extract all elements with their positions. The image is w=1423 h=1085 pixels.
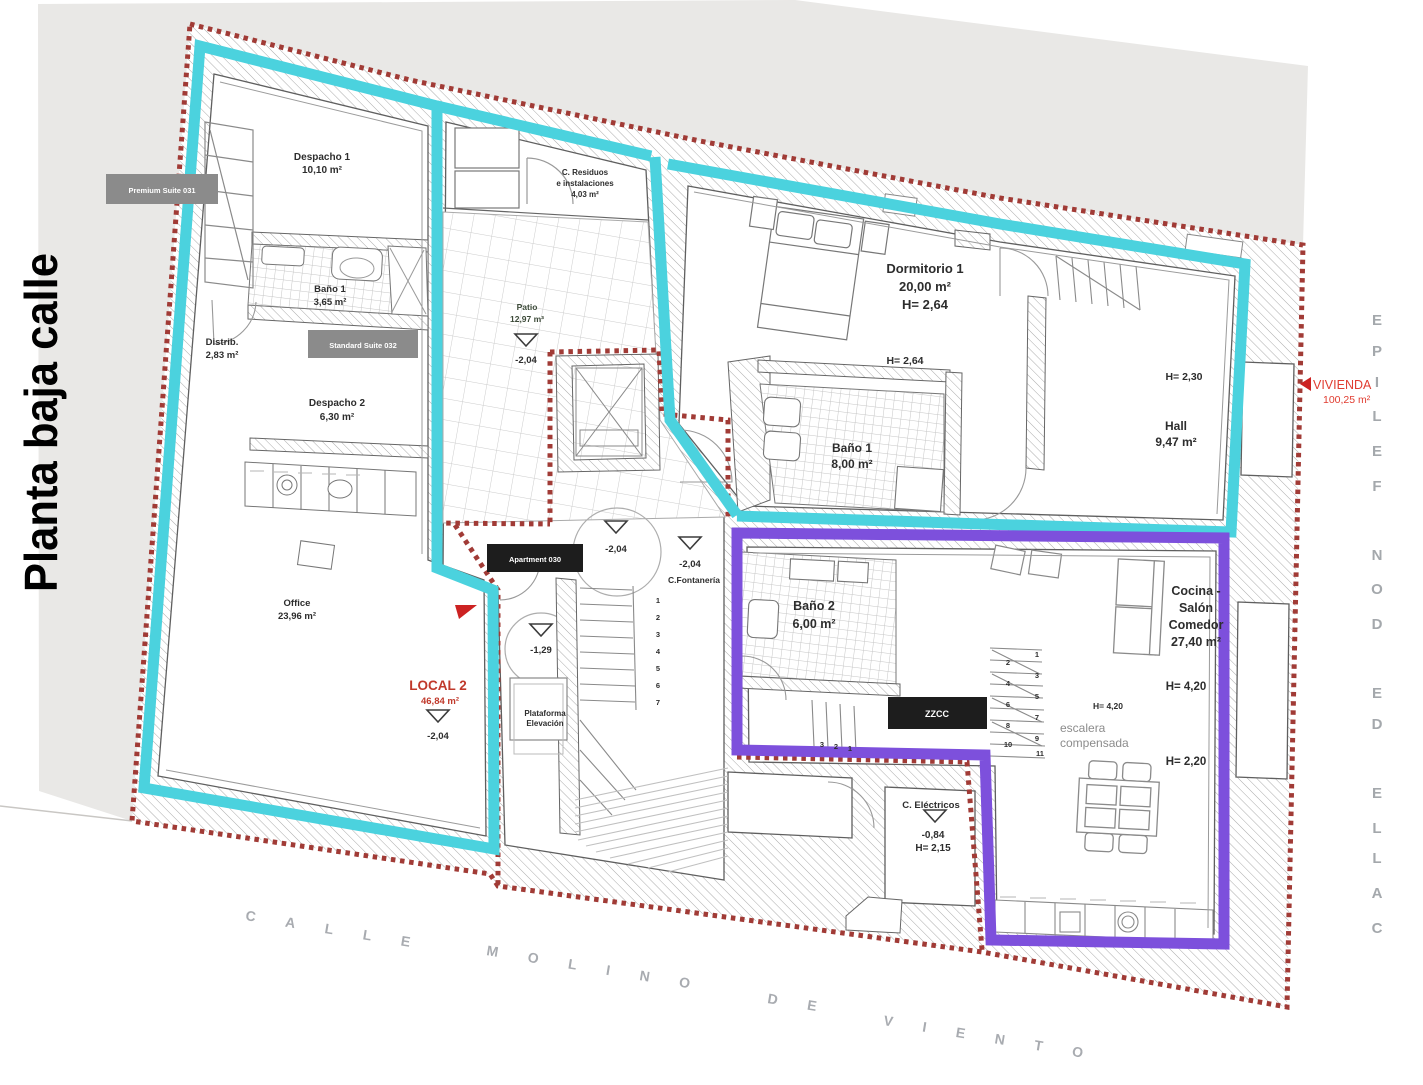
svg-text:H= 4,20: H= 4,20 xyxy=(1166,681,1207,693)
svg-text:ZZCC: ZZCC xyxy=(925,709,949,719)
svg-text:E: E xyxy=(1372,685,1382,702)
svg-text:3,65 m²: 3,65 m² xyxy=(314,297,347,308)
svg-text:escalera: escalera xyxy=(1060,721,1106,735)
svg-text:Despacho 1: Despacho 1 xyxy=(294,152,351,163)
svg-text:5: 5 xyxy=(656,664,660,673)
svg-text:Comedor: Comedor xyxy=(1169,618,1224,632)
svg-text:7: 7 xyxy=(656,698,660,707)
svg-text:D: D xyxy=(1372,616,1383,633)
svg-text:Hall: Hall xyxy=(1165,419,1187,433)
svg-text:4,03 m²: 4,03 m² xyxy=(571,190,599,199)
svg-text:-2,04: -2,04 xyxy=(515,355,537,366)
svg-text:E: E xyxy=(1372,312,1382,329)
svg-text:Elevación: Elevación xyxy=(526,719,563,728)
svg-text:H= 2,30: H= 2,30 xyxy=(1165,371,1202,383)
svg-text:L: L xyxy=(1372,820,1381,837)
svg-text:Premium Suite 031: Premium Suite 031 xyxy=(128,186,195,195)
svg-text:2,83 m²: 2,83 m² xyxy=(206,350,239,361)
svg-text:3: 3 xyxy=(656,630,660,639)
svg-text:100,25 m²: 100,25 m² xyxy=(1323,394,1371,406)
svg-text:Salón: Salón xyxy=(1179,601,1213,615)
svg-text:Distrib.: Distrib. xyxy=(206,337,239,348)
svg-text:6,00 m²: 6,00 m² xyxy=(792,617,835,631)
svg-text:1: 1 xyxy=(1035,650,1039,659)
svg-text:9: 9 xyxy=(1035,734,1039,743)
svg-text:-1,29: -1,29 xyxy=(530,645,552,656)
svg-text:H= 2,20: H= 2,20 xyxy=(1166,756,1207,768)
svg-text:12,97 m³: 12,97 m³ xyxy=(510,314,544,324)
svg-text:Dormitorio 1: Dormitorio 1 xyxy=(886,261,963,276)
svg-text:46,84 m²: 46,84 m² xyxy=(421,696,459,707)
svg-text:H= 4,20: H= 4,20 xyxy=(1093,701,1123,711)
svg-text:2: 2 xyxy=(656,613,660,622)
svg-text:1: 1 xyxy=(848,744,852,753)
svg-text:Apartment 030: Apartment 030 xyxy=(509,555,561,564)
svg-text:VIVIENDA: VIVIENDA xyxy=(1313,378,1372,392)
svg-text:C.Fontanería: C.Fontanería xyxy=(668,575,720,585)
svg-text:8: 8 xyxy=(1006,721,1010,730)
svg-text:Standard Suite 032: Standard Suite 032 xyxy=(329,341,397,350)
svg-text:N: N xyxy=(1372,547,1383,564)
svg-text:Cocina -: Cocina - xyxy=(1171,584,1220,598)
svg-text:10,10 m²: 10,10 m² xyxy=(302,165,343,176)
svg-text:L: L xyxy=(1372,850,1381,867)
svg-text:Office: Office xyxy=(284,598,311,609)
svg-text:6: 6 xyxy=(1006,700,1010,709)
svg-text:11: 11 xyxy=(1036,749,1044,758)
svg-text:e instalaciones: e instalaciones xyxy=(556,179,614,188)
svg-text:F: F xyxy=(1372,478,1381,495)
svg-text:-2,04: -2,04 xyxy=(679,559,701,570)
svg-text:-0,84: -0,84 xyxy=(922,830,945,841)
svg-text:Baño 1: Baño 1 xyxy=(832,441,872,455)
svg-text:D: D xyxy=(1372,716,1383,733)
svg-text:Patio: Patio xyxy=(517,302,538,312)
svg-text:1: 1 xyxy=(656,596,660,605)
svg-text:I: I xyxy=(1375,374,1379,391)
svg-text:-2,04: -2,04 xyxy=(605,544,627,555)
svg-text:6: 6 xyxy=(656,681,660,690)
svg-text:27,40 m²: 27,40 m² xyxy=(1171,635,1221,649)
svg-text:O: O xyxy=(1371,581,1383,598)
svg-text:3: 3 xyxy=(1035,671,1039,680)
svg-text:20,00 m²: 20,00 m² xyxy=(899,279,952,294)
svg-text:6,30 m²: 6,30 m² xyxy=(320,412,355,423)
svg-text:A: A xyxy=(1372,885,1383,902)
svg-text:E: E xyxy=(1372,443,1382,460)
svg-text:Baño 1: Baño 1 xyxy=(314,284,346,295)
svg-text:2: 2 xyxy=(834,742,838,751)
svg-text:H= 2,64: H= 2,64 xyxy=(902,297,949,312)
svg-text:3: 3 xyxy=(820,740,824,749)
svg-text:LOCAL 2: LOCAL 2 xyxy=(409,678,467,693)
svg-text:C. Residuos: C. Residuos xyxy=(562,168,609,177)
svg-text:H= 2,64: H= 2,64 xyxy=(886,355,923,367)
svg-text:C. Eléctricos: C. Eléctricos xyxy=(902,800,960,811)
svg-text:Plataforma: Plataforma xyxy=(524,709,566,718)
svg-text:Despacho 2: Despacho 2 xyxy=(309,398,366,409)
svg-text:Planta baja calle: Planta baja calle xyxy=(15,253,67,592)
svg-text:7: 7 xyxy=(1035,713,1039,722)
svg-text:L: L xyxy=(1372,408,1381,425)
svg-text:5: 5 xyxy=(1035,692,1039,701)
svg-text:Baño 2: Baño 2 xyxy=(793,599,835,613)
svg-text:23,96 m²: 23,96 m² xyxy=(278,611,316,622)
svg-text:P: P xyxy=(1372,343,1382,360)
svg-text:compensada: compensada xyxy=(1060,736,1129,750)
svg-text:2: 2 xyxy=(1006,658,1010,667)
svg-text:8,00 m²: 8,00 m² xyxy=(831,457,872,471)
svg-text:E: E xyxy=(1372,785,1382,802)
svg-text:C: C xyxy=(1372,920,1383,937)
svg-text:9,47 m²: 9,47 m² xyxy=(1155,435,1196,449)
svg-text:-2,04: -2,04 xyxy=(427,731,449,742)
svg-text:10: 10 xyxy=(1004,740,1012,749)
svg-text:H= 2,15: H= 2,15 xyxy=(915,843,951,854)
